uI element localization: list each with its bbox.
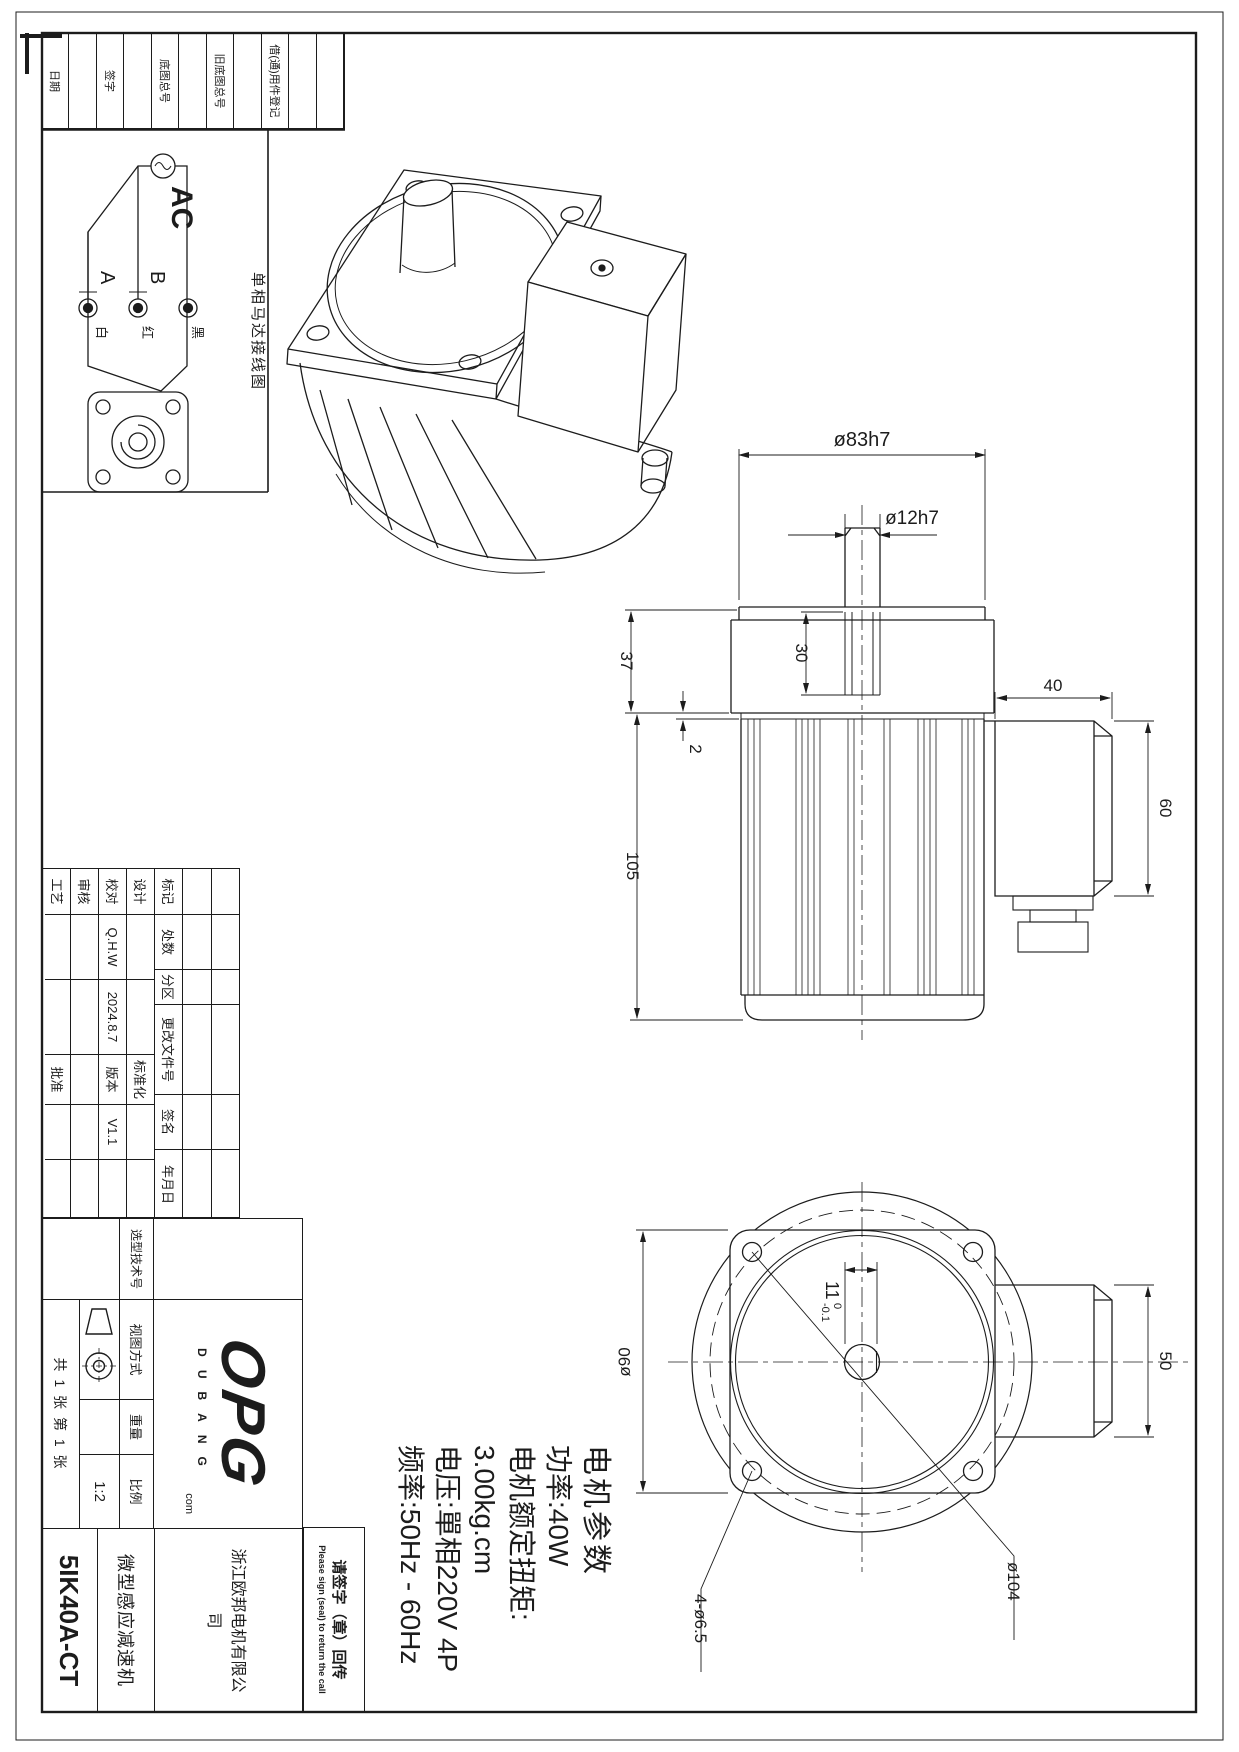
cell-design: 设计 <box>126 869 154 914</box>
title-block: 标记 处数 分区 更改文件号 签名 年月日 设计 标准化 校对 Q.H.W 20… <box>42 868 365 1712</box>
sign-return-cn: 请签字（章）回传 <box>330 1559 351 1679</box>
terminal-dots <box>79 299 197 317</box>
side-view <box>731 505 1112 1040</box>
params-voltage: 电压:單相220V 4P <box>432 1445 463 1672</box>
cell-process: 工艺 <box>45 869 70 914</box>
dim-105: 105 <box>623 852 642 880</box>
dim-holes: 4-ø6.5 <box>691 1594 710 1643</box>
dim-50: 50 <box>1156 1352 1175 1371</box>
dim-d12: ø12h7 <box>885 508 939 529</box>
hdr-count: 处数 <box>154 914 182 969</box>
dim-40: 40 <box>1044 676 1063 695</box>
dim-37: 37 <box>617 652 636 671</box>
cell-sheet-info: 共 1 张 第 1 张 <box>41 1299 79 1528</box>
params-power: 功率:40W <box>543 1445 574 1567</box>
titleblock-right: OPG DUBANG com 选型技术号 视图方式 重量 比例 <box>42 1218 303 1712</box>
cell-check-name: Q.H.W <box>98 914 126 979</box>
wiring-caption: 单相马达接线图 <box>249 272 266 391</box>
params-frequency: 频率:50Hz - 60Hz <box>395 1445 426 1664</box>
rear-cap <box>745 995 984 1020</box>
cell-selection-no: 选型技术号 <box>119 1219 154 1299</box>
dubang-logo-text: DUBANG <box>195 1348 209 1479</box>
wiring-labels: AC A B 白 红 黑 单相马达接线图 <box>94 186 266 391</box>
hdr-sign: 签名 <box>154 1094 182 1149</box>
side-view-dimensions <box>625 449 1154 1020</box>
terminal-box-bottom <box>995 1285 1112 1437</box>
dim-flat-tol-hi: 0 <box>831 1303 843 1309</box>
cell-version-label: 版本 <box>98 1054 126 1104</box>
dim-flat-main: 11 <box>822 1281 842 1300</box>
drawing-sheet: AC A B 白 红 黑 单相马达接线图 <box>0 0 1239 1752</box>
field-borrow-record: 借(通)用件登记 <box>261 34 288 128</box>
hdr-zone: 分区 <box>154 969 182 1004</box>
dim-60: 60 <box>1156 799 1175 818</box>
terminal-box-side <box>984 721 1112 896</box>
dim-2: 2 <box>686 744 705 753</box>
cell-approve: 批准 <box>45 1054 70 1104</box>
bottom-view <box>668 1182 1190 1672</box>
hdr-change-doc: 更改文件号 <box>154 1004 182 1094</box>
wiring-terminal-a: A <box>96 271 118 285</box>
cooling-fins <box>748 719 974 995</box>
dim-d83: ø83h7 <box>834 429 891 451</box>
side-view-dim-text: ø83h7 ø12h7 30 37 2 105 40 60 <box>617 429 1175 880</box>
wiring-flange-sketch <box>88 392 188 492</box>
wiring-ac-label: AC <box>165 186 198 229</box>
projection-symbol-cell <box>79 1299 119 1399</box>
cell-review: 审核 <box>70 869 98 914</box>
cell-check-date: 2024.8.7 <box>98 979 126 1054</box>
cell-standardization: 标准化 <box>126 1054 154 1104</box>
cell-company: 浙江欧邦电机有限公司 <box>154 1528 302 1713</box>
wire-white-label: 白 <box>94 326 109 339</box>
revision-grid: 标记 处数 分区 更改文件号 签名 年月日 设计 标准化 校对 Q.H.W 20… <box>42 868 240 1218</box>
dim-d104: ø104 <box>1004 1562 1023 1601</box>
cell-part-no: 5IK40A-CT <box>41 1528 97 1713</box>
params-torque-label: 电机额定扭矩: <box>506 1445 537 1621</box>
field-signature: 签字 <box>96 34 123 128</box>
isometric-view <box>287 160 686 573</box>
cell-check: 校对 <box>98 869 126 914</box>
sign-return-en: Please sign (seal) to return the call <box>318 1545 328 1694</box>
wiring-terminal-b: B <box>146 271 168 284</box>
cell-version-value: V1.1 <box>98 1104 126 1159</box>
output-shaft <box>845 528 880 607</box>
hdr-date: 年月日 <box>154 1149 182 1219</box>
edge-field-strip: 借(通)用件登记 旧底图总号 底图总号 签字 日期 <box>42 33 345 130</box>
cell-product: 微型感应减速机 <box>97 1528 154 1713</box>
cell-scale-value: 1:2 <box>79 1454 119 1528</box>
dim-d90: ø90 <box>615 1347 634 1376</box>
cell-weight: 重量 <box>119 1399 154 1454</box>
hdr-mark: 标记 <box>154 869 182 914</box>
field-old-master-no: 旧底图总号 <box>206 34 233 128</box>
wire-red-label: 红 <box>140 326 155 339</box>
field-date: 日期 <box>42 34 68 128</box>
wire-black-label: 黑 <box>190 326 205 339</box>
cable-gland <box>1013 896 1093 952</box>
sign-return-box: 请签字（章）回传 Please sign (seal) to return th… <box>303 1527 365 1712</box>
logo-cell: OPG DUBANG com <box>154 1299 302 1528</box>
opg-logo: OPG <box>211 1333 273 1494</box>
dim-30: 30 <box>792 644 811 663</box>
flange-plate <box>731 620 994 713</box>
dim-flat-tol-lo: -0.1 <box>819 1303 831 1322</box>
motor-params: 电机参数 功率:40W 电机额定扭矩: 3.00kg.cm 电压:單相220V … <box>395 1445 612 1672</box>
motor-body <box>741 719 984 995</box>
cell-scale: 比例 <box>119 1454 154 1528</box>
params-title: 电机参数 <box>579 1445 612 1577</box>
field-master-no: 底图总号 <box>151 34 178 128</box>
logo-com: com <box>183 1493 195 1514</box>
first-angle-projection-icon <box>83 1304 117 1396</box>
cell-view-method: 视图方式 <box>119 1299 154 1399</box>
params-torque-value: 3.00kg.cm <box>469 1445 500 1574</box>
